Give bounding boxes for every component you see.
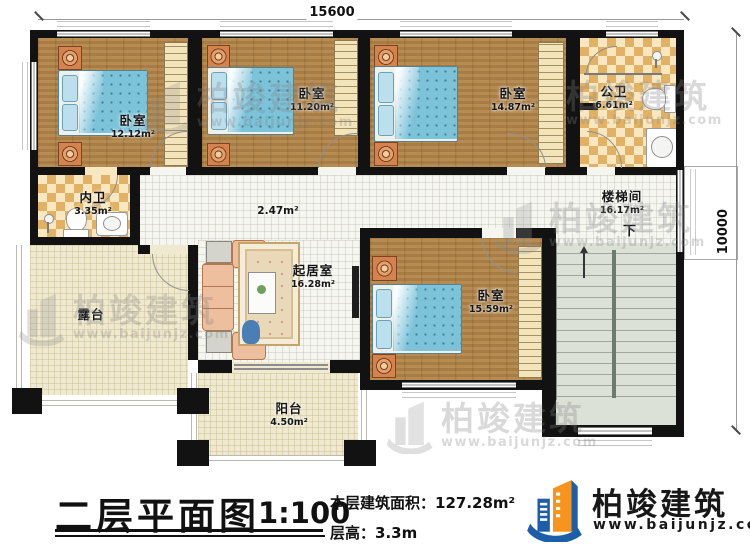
wall <box>186 167 318 175</box>
column <box>12 388 42 414</box>
room-label-hallway: 2.47m² <box>257 205 298 217</box>
dimension-line-right <box>736 34 737 432</box>
wall <box>615 167 676 175</box>
window-sill <box>57 21 150 27</box>
window <box>677 170 683 252</box>
coffee-table <box>248 272 276 314</box>
nightstand <box>372 354 396 378</box>
room-label-bedroom1: 卧室 12.12m² <box>111 114 155 140</box>
side-table <box>206 331 232 353</box>
title-underline <box>55 535 325 537</box>
floor-area-row: 本层建筑面积：127.28m² <box>330 492 515 513</box>
wall <box>188 245 198 360</box>
room-label-terrace: 露台 <box>77 308 104 323</box>
side-table <box>206 241 232 263</box>
column <box>177 388 209 414</box>
room-label-balcony: 阳台 4.50m² <box>270 402 308 428</box>
toilet-bowl <box>642 88 666 110</box>
stairs-treads <box>556 243 677 425</box>
shower-head-arm <box>47 222 49 233</box>
wall <box>360 228 370 390</box>
wardrobe <box>538 42 564 164</box>
nightstand <box>207 45 230 68</box>
window-sill <box>220 21 333 27</box>
room-label-bedroom3: 卧室 14.87m² <box>491 87 535 113</box>
wall <box>545 167 587 175</box>
window-sill <box>578 440 652 446</box>
column <box>177 440 209 466</box>
window <box>220 31 333 37</box>
watermark-building-icon <box>384 398 436 454</box>
door-opening <box>150 245 188 254</box>
door-opening <box>150 167 186 175</box>
door-opening <box>482 228 516 238</box>
tv-panel <box>352 266 359 318</box>
stairs-direction-line <box>583 252 585 278</box>
floor-height-value: 3.3m <box>375 524 417 542</box>
window <box>402 382 516 388</box>
room-label-stairwell: 楼梯间 16.17m² <box>600 190 644 216</box>
bed <box>374 66 458 142</box>
shower-head <box>652 51 662 61</box>
wall <box>30 167 85 175</box>
wall <box>360 228 482 238</box>
wall <box>188 38 202 167</box>
wall <box>566 38 580 167</box>
title-underline <box>55 529 323 532</box>
terrace-railing <box>16 245 22 407</box>
window <box>31 62 37 150</box>
wall <box>356 167 507 175</box>
window-sill <box>606 21 658 27</box>
wardrobe <box>334 40 358 136</box>
sink-basin <box>103 216 121 231</box>
floor-area-value: 127.28m² <box>435 494 515 512</box>
brand-logo-icon <box>524 476 586 542</box>
nightstand <box>58 142 82 166</box>
room-label-private-bath: 内卫 3.35m² <box>74 191 112 217</box>
door-opening <box>318 167 356 175</box>
door-opening <box>507 167 545 175</box>
sink-basin <box>651 136 673 158</box>
dimension-line-top <box>38 19 684 20</box>
balcony-railing <box>191 455 367 461</box>
room-label-bedroom4: 卧室 15.59m² <box>469 289 513 315</box>
terrace-railing <box>16 400 190 406</box>
dimension-right-value: 10000 <box>716 206 731 257</box>
nightstand <box>207 143 230 166</box>
nightstand <box>58 46 82 70</box>
wall <box>198 360 232 373</box>
brand-website: www.baijunjz.com <box>593 517 750 533</box>
floor-height-label: 层高： <box>330 524 375 542</box>
sliding-door-line <box>234 368 328 370</box>
person-figure <box>242 320 260 344</box>
dimension-top-value: 15600 <box>306 5 357 20</box>
window-sill <box>400 21 512 27</box>
window <box>578 427 652 435</box>
column <box>344 440 376 466</box>
floor-height-row: 层高：3.3m <box>330 522 417 543</box>
stairs-landing <box>556 400 676 425</box>
bed <box>207 67 294 135</box>
door-opening <box>587 167 615 175</box>
room-label-public-bath: 公卫 6.61m² <box>595 85 633 111</box>
window <box>400 31 512 37</box>
shower-head <box>44 214 54 224</box>
sofa <box>202 263 234 331</box>
wall <box>542 228 556 437</box>
window-sill <box>402 392 516 398</box>
window <box>606 31 658 37</box>
floor-area-label: 本层建筑面积： <box>330 494 435 512</box>
wall <box>30 237 140 245</box>
stairs-center-rail <box>612 250 616 398</box>
nightstand <box>372 256 397 281</box>
stairs-down-label: 下 <box>623 224 637 239</box>
floorplan-canvas: 15600 10000 卧室 12.12m² 卧室 11.20m² 卧室 14.… <box>0 0 750 548</box>
nightstand <box>374 142 398 166</box>
wall <box>130 167 140 245</box>
wall <box>358 38 370 167</box>
window-sill <box>22 62 28 150</box>
room-label-bedroom2: 卧室 11.20m² <box>290 87 334 113</box>
sliding-door-line <box>234 364 328 366</box>
door-opening <box>85 167 117 175</box>
room-label-living: 起居室 16.28m² <box>291 264 335 290</box>
bed <box>372 284 462 354</box>
wardrobe <box>518 246 542 378</box>
window <box>57 31 150 37</box>
shower-head-arm <box>655 59 657 68</box>
